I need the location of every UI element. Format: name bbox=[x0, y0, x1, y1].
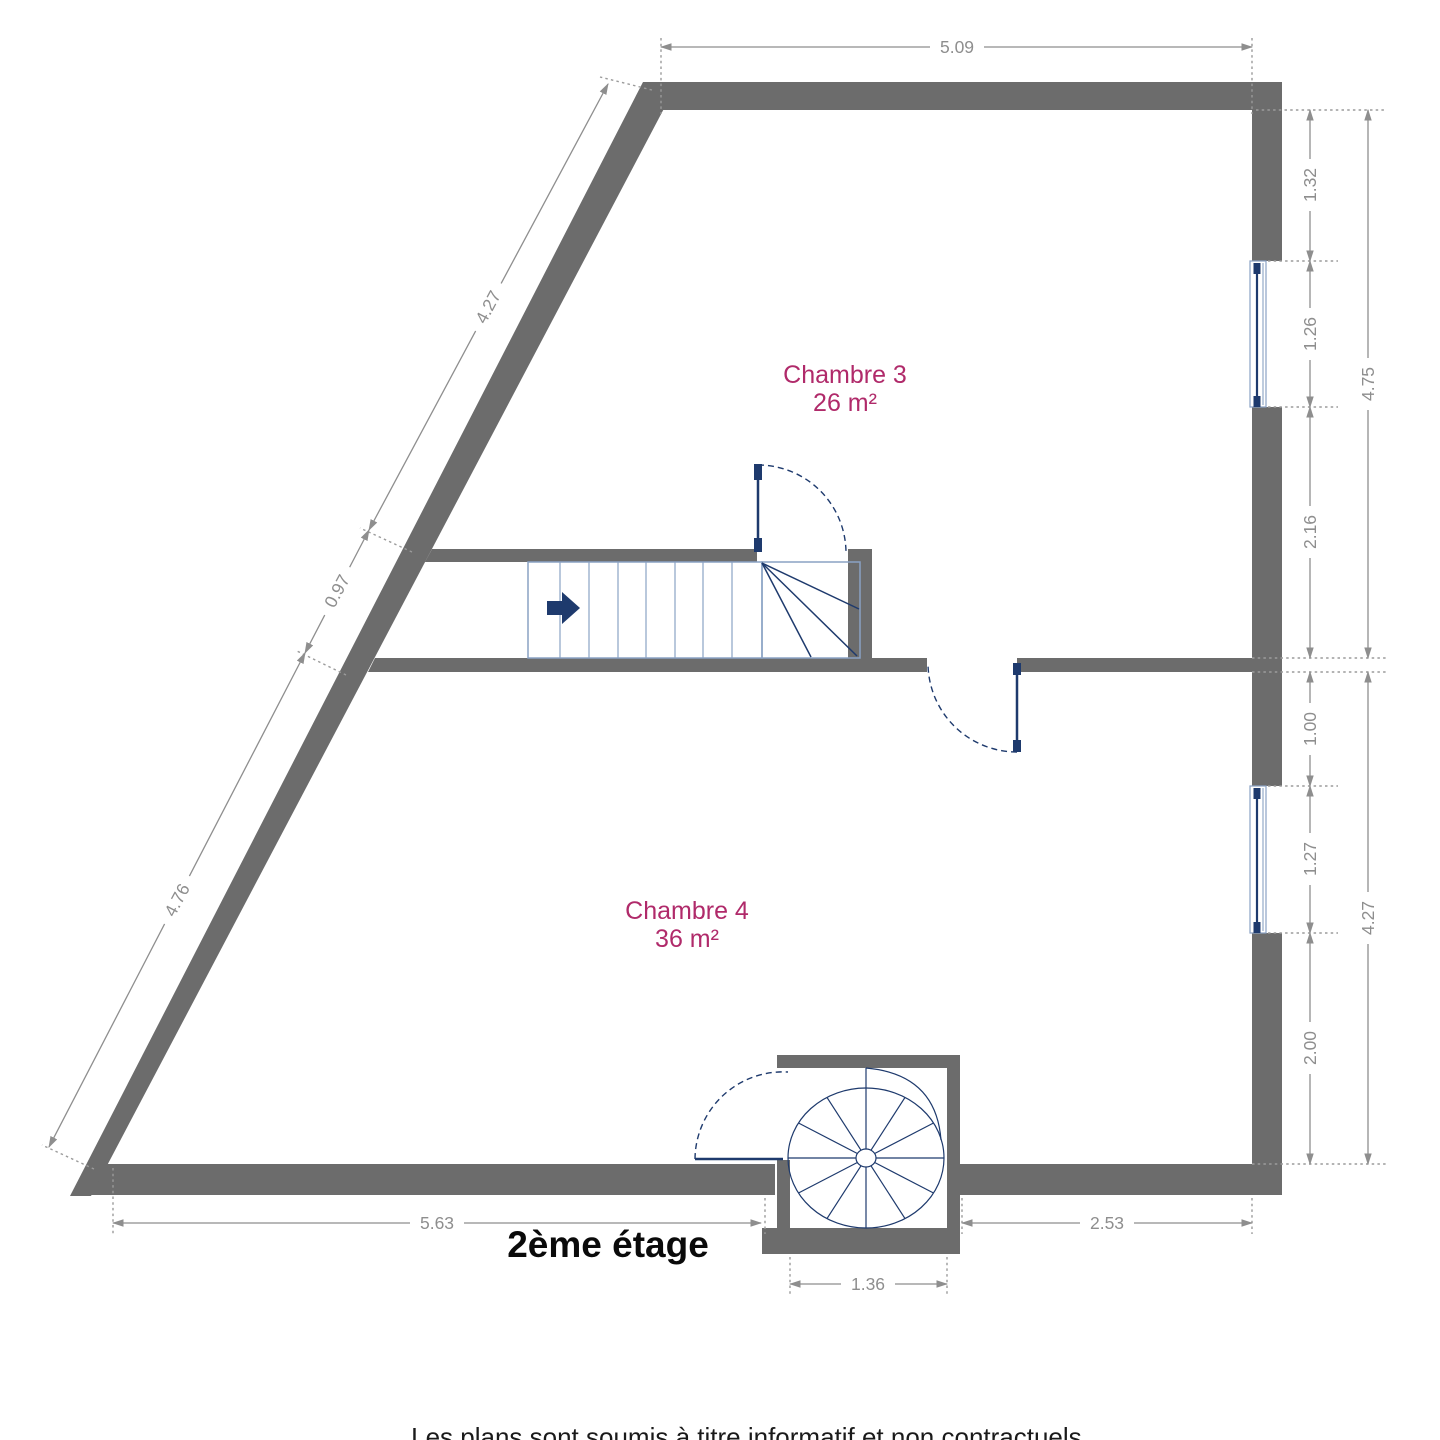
floor-plan-canvas: 5.09 1.32 1.26 2.16 4.75 1.00 1 bbox=[0, 0, 1440, 1440]
wall-corridor-bottom bbox=[368, 658, 927, 672]
wall-top bbox=[643, 82, 1282, 110]
wall-stairbox-left bbox=[777, 1160, 790, 1228]
wall-bottom-right bbox=[960, 1164, 1282, 1195]
door-chambre4 bbox=[928, 663, 1021, 752]
disclaimer-text: Les plans sont soumis à titre informatif… bbox=[411, 1422, 1089, 1440]
room-label-chambre4: Chambre 4 bbox=[625, 897, 749, 925]
spiral-entry-arc bbox=[866, 1068, 941, 1140]
wall-right-lower bbox=[1252, 933, 1282, 1195]
door-chambre3 bbox=[754, 464, 846, 553]
dim-label-right-2-00: 2.00 bbox=[1300, 1031, 1320, 1065]
walls bbox=[70, 82, 1282, 1254]
dim-label-right-total-4-27: 4.27 bbox=[1358, 901, 1378, 935]
dim-label-right-1-27: 1.27 bbox=[1300, 842, 1320, 876]
wall-stairbox-right bbox=[947, 1068, 960, 1230]
dim-label-right-2-16: 2.16 bbox=[1300, 515, 1320, 549]
spiral-staircase bbox=[788, 1068, 944, 1228]
stair-direction-arrow bbox=[547, 592, 580, 624]
wall-middle-right bbox=[1017, 658, 1252, 672]
wall-bottom-left bbox=[88, 1164, 775, 1195]
wall-stairbox-bottom bbox=[762, 1228, 960, 1254]
wall-right-upper bbox=[1252, 110, 1282, 261]
wall-sloped-left bbox=[70, 82, 678, 1196]
dim-label-bottom-5-63: 5.63 bbox=[420, 1213, 454, 1233]
stair-winders bbox=[762, 562, 860, 658]
spiral-treads bbox=[788, 1068, 944, 1228]
dim-label-right-total-4-75: 4.75 bbox=[1358, 367, 1378, 401]
wall-corridor-top bbox=[425, 549, 757, 562]
room-area-chambre4: 36 m² bbox=[655, 925, 719, 953]
dim-label-top: 5.09 bbox=[940, 37, 974, 57]
dim-label-stair-well-1-36: 1.36 bbox=[851, 1274, 885, 1294]
wall-stairbox-top bbox=[777, 1055, 960, 1068]
wall-right-middle bbox=[1252, 407, 1282, 786]
floor-title: 2ème étage bbox=[507, 1224, 709, 1265]
dim-label-right-1-26: 1.26 bbox=[1300, 317, 1320, 351]
spiral-center-post bbox=[856, 1149, 876, 1167]
main-staircase bbox=[528, 562, 860, 658]
window-1 bbox=[1250, 261, 1266, 407]
dim-label-right-1-00: 1.00 bbox=[1300, 712, 1320, 746]
window-2 bbox=[1250, 786, 1266, 933]
dim-label-bottom-2-53: 2.53 bbox=[1090, 1213, 1124, 1233]
door-spiral-stair bbox=[695, 1072, 788, 1159]
room-label-chambre3: Chambre 3 bbox=[783, 361, 907, 389]
dim-label-right-1-32: 1.32 bbox=[1300, 168, 1320, 202]
room-area-chambre3: 26 m² bbox=[813, 389, 877, 417]
